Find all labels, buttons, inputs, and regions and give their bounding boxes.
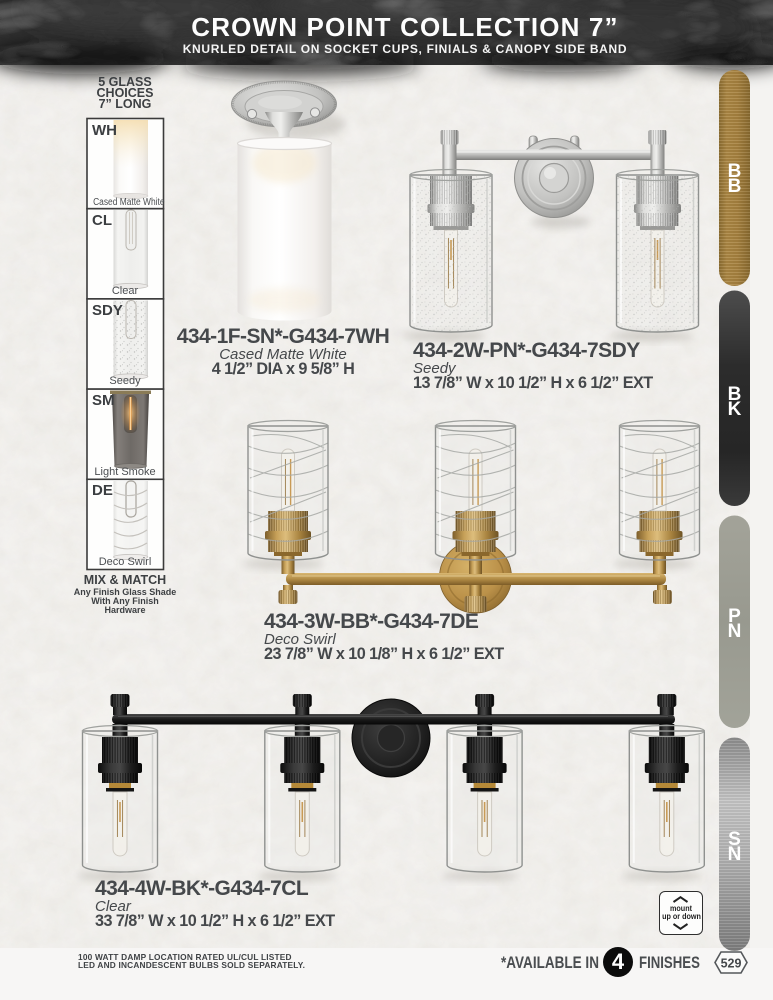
svg-text:529: 529 <box>721 956 742 970</box>
